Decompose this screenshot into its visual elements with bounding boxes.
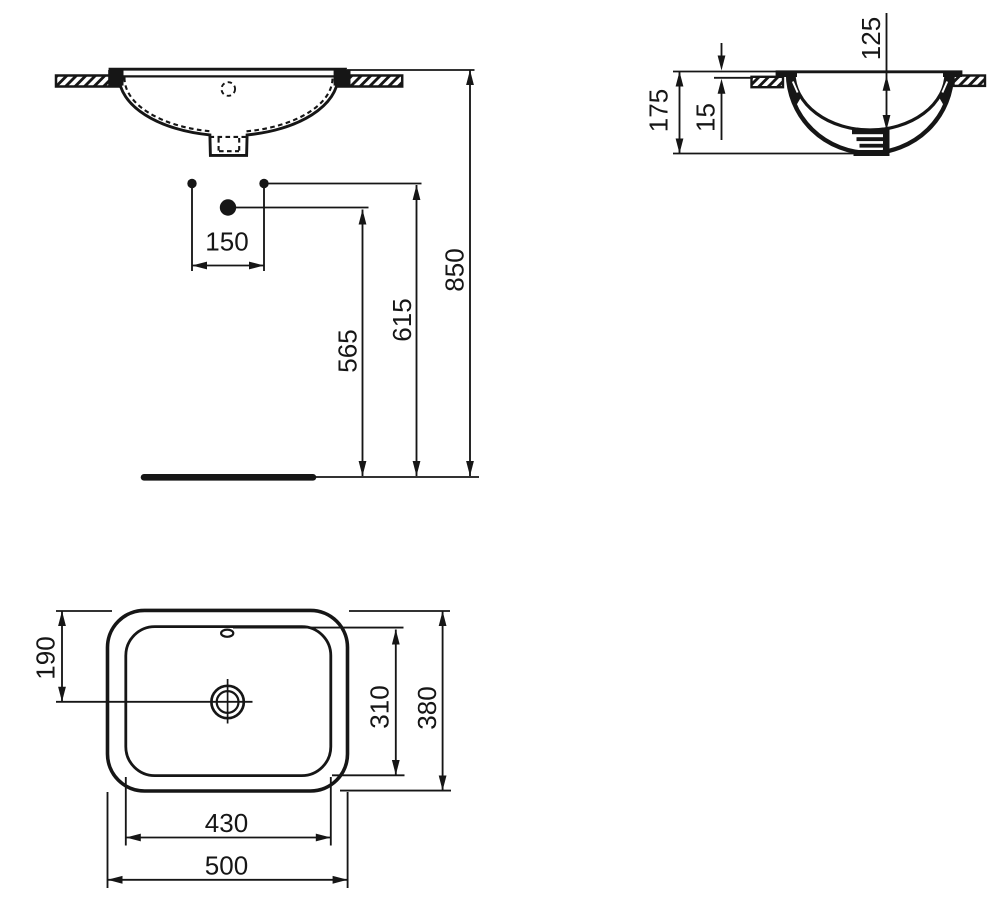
svg-text:430: 430 (205, 808, 248, 838)
svg-text:565: 565 (333, 329, 363, 372)
svg-text:310: 310 (365, 685, 395, 728)
svg-text:500: 500 (205, 851, 248, 881)
svg-text:150: 150 (205, 227, 248, 257)
svg-text:190: 190 (31, 636, 61, 679)
svg-text:850: 850 (440, 248, 470, 291)
svg-text:380: 380 (412, 686, 442, 729)
svg-text:615: 615 (387, 298, 417, 341)
svg-text:15: 15 (691, 103, 721, 132)
svg-text:125: 125 (856, 17, 886, 60)
svg-text:175: 175 (644, 89, 674, 132)
